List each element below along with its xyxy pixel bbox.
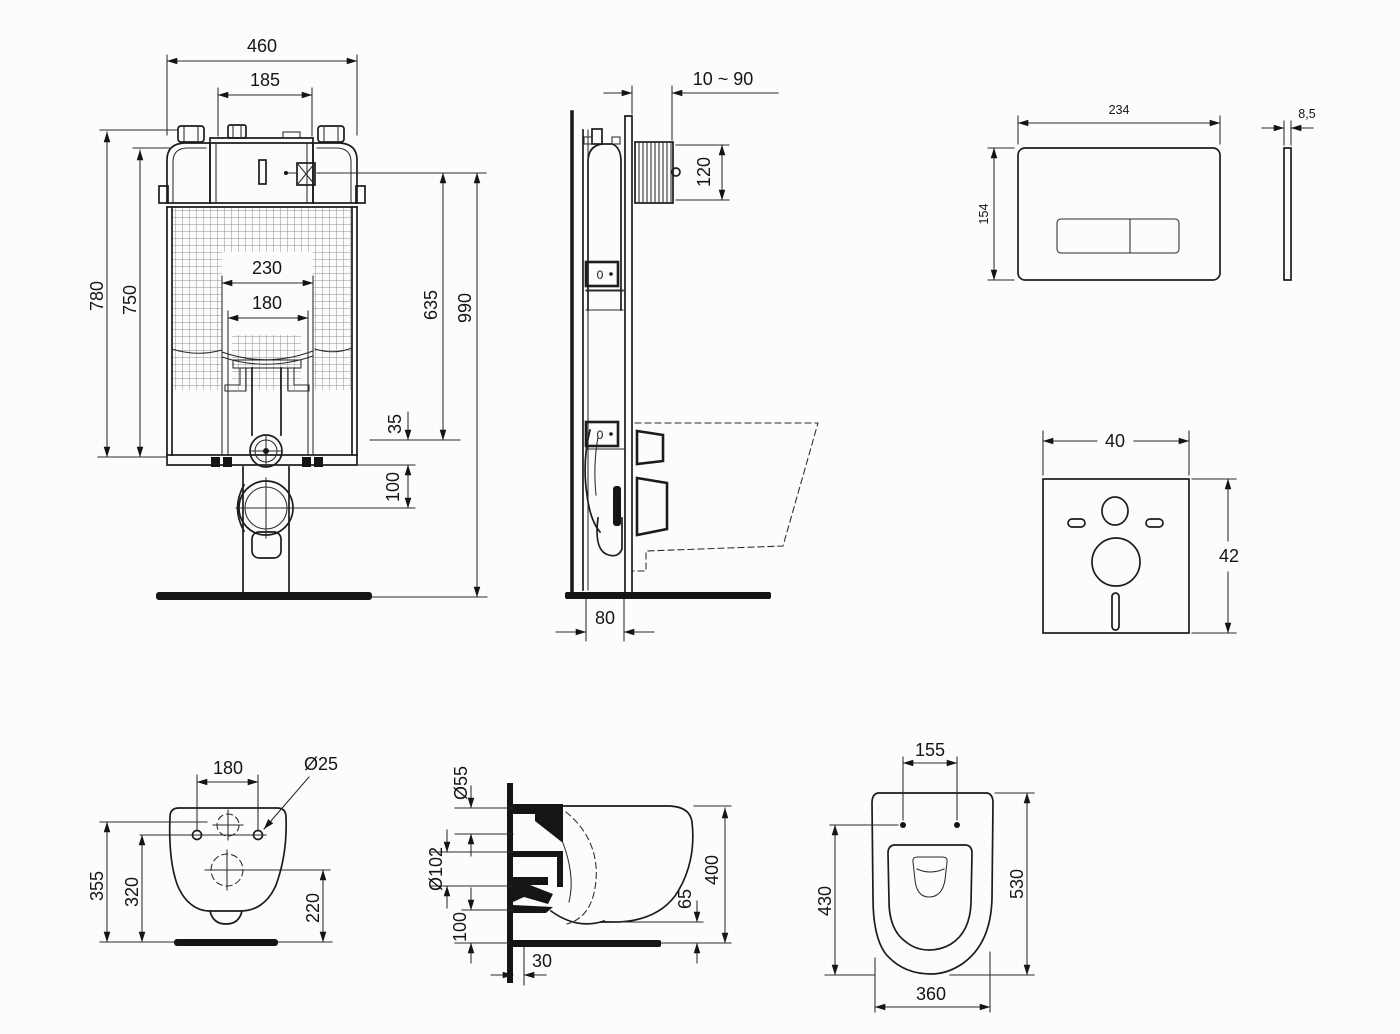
hinge-hole-right bbox=[954, 822, 960, 828]
dim-label-65: 65 bbox=[675, 889, 695, 909]
dim-label-80: 80 bbox=[595, 608, 615, 628]
dim-label-30: 30 bbox=[532, 951, 552, 971]
dim-label-155: 155 bbox=[915, 740, 945, 760]
dim-label-400: 400 bbox=[702, 855, 722, 885]
dim-label-220: 220 bbox=[303, 893, 323, 923]
dim-label-180-front: 180 bbox=[252, 293, 282, 313]
dim-label-530: 530 bbox=[1007, 869, 1027, 899]
drawing-canvas: 460 185 780 750 230 180 bbox=[0, 0, 1400, 1034]
dim-label-360: 360 bbox=[916, 984, 946, 1004]
floor-shadow-side bbox=[509, 940, 661, 947]
dim-label-635: 635 bbox=[421, 290, 441, 320]
hinge-hole-left bbox=[900, 822, 906, 828]
floor-shadow bbox=[174, 939, 278, 946]
dim-label-320: 320 bbox=[122, 877, 142, 907]
dim-label-100-side: 100 bbox=[450, 912, 470, 942]
dim-label-180-rear: 180 bbox=[213, 758, 243, 778]
dim-label-d25: Ø25 bbox=[304, 754, 338, 774]
dim-label-750: 750 bbox=[120, 285, 140, 315]
dim-label-780: 780 bbox=[87, 281, 107, 311]
dim-label-d55: Ø55 bbox=[451, 766, 471, 800]
floor-plate-side bbox=[565, 592, 771, 599]
dim-label-230: 230 bbox=[252, 258, 282, 278]
cistern-mesh-right bbox=[313, 252, 352, 390]
dim-label-430: 430 bbox=[815, 886, 835, 916]
wall-section bbox=[507, 783, 513, 983]
dim-label-154: 154 bbox=[977, 204, 991, 225]
dim-label-40: 40 bbox=[1105, 431, 1125, 451]
dim-label-10-90: 10 ~ 90 bbox=[693, 69, 754, 89]
floor-plate bbox=[156, 592, 372, 600]
dim-label-35: 35 bbox=[385, 414, 405, 434]
cistern-mesh-top bbox=[172, 207, 352, 252]
dim-label-990: 990 bbox=[455, 293, 475, 323]
dim-label-460: 460 bbox=[247, 36, 277, 56]
dim-label-8-5: 8,5 bbox=[1298, 107, 1315, 121]
dim-label-42: 42 bbox=[1219, 546, 1239, 566]
dim-label-100-front: 100 bbox=[383, 472, 403, 502]
dim-label-355: 355 bbox=[87, 871, 107, 901]
dim-label-120: 120 bbox=[694, 157, 714, 187]
cistern-mesh-left bbox=[172, 252, 222, 390]
flush-valve-seat bbox=[250, 435, 282, 467]
dim-label-234: 234 bbox=[1109, 103, 1130, 117]
dim-label-d102: Ø102 bbox=[426, 847, 446, 891]
dim-label-185: 185 bbox=[250, 70, 280, 90]
gauge-mark-upper: 0 bbox=[597, 268, 604, 282]
technical-drawing-sheet: 460 185 780 750 230 180 bbox=[0, 0, 1400, 1034]
